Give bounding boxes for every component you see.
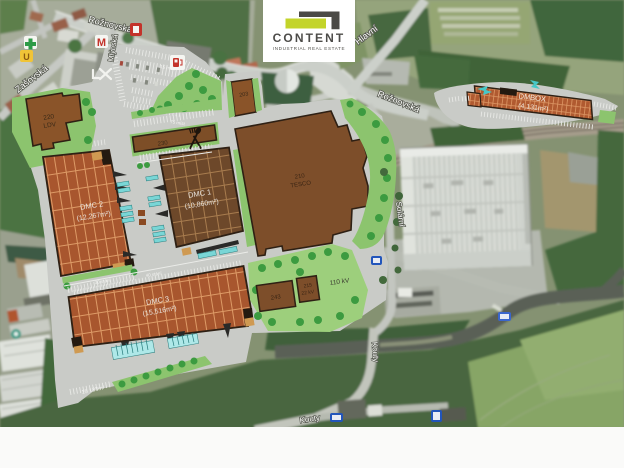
svg-text:CONTENT: CONTENT [273, 31, 346, 45]
svg-text:215: 215 [303, 282, 312, 289]
svg-text:U: U [23, 52, 30, 62]
svg-text:INDUSTRIAL REAL ESTATE: INDUSTRIAL REAL ESTATE [273, 46, 345, 51]
svg-text:Kouty: Kouty [370, 342, 380, 363]
svg-text:M: M [97, 37, 106, 49]
